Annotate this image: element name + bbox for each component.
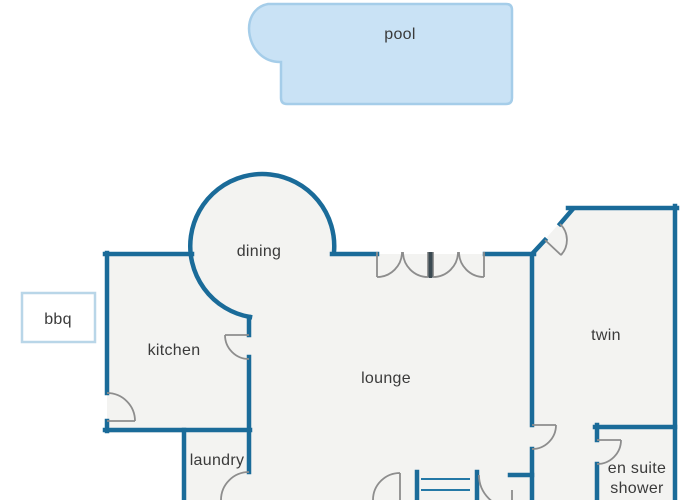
ensuite-label-line1: en suite <box>608 460 666 477</box>
laundry-label: laundry <box>190 452 245 469</box>
pool-label: pool <box>384 26 415 43</box>
lounge-label: lounge <box>361 370 411 387</box>
ensuite-label-line2: shower <box>610 480 664 497</box>
pool-outline <box>249 4 512 104</box>
twin-label: twin <box>591 327 621 344</box>
floor-plan-canvas: pool dining bbq kitchen lounge twin laun… <box>0 0 700 500</box>
pool-area <box>249 4 512 104</box>
dining-label: dining <box>237 243 282 260</box>
kitchen-label: kitchen <box>148 342 201 359</box>
french-door-centre-post <box>429 252 433 278</box>
floor-plan-svg: pool dining bbq kitchen lounge twin laun… <box>0 0 700 500</box>
twin-floor <box>532 208 675 500</box>
bbq-label: bbq <box>44 311 72 328</box>
